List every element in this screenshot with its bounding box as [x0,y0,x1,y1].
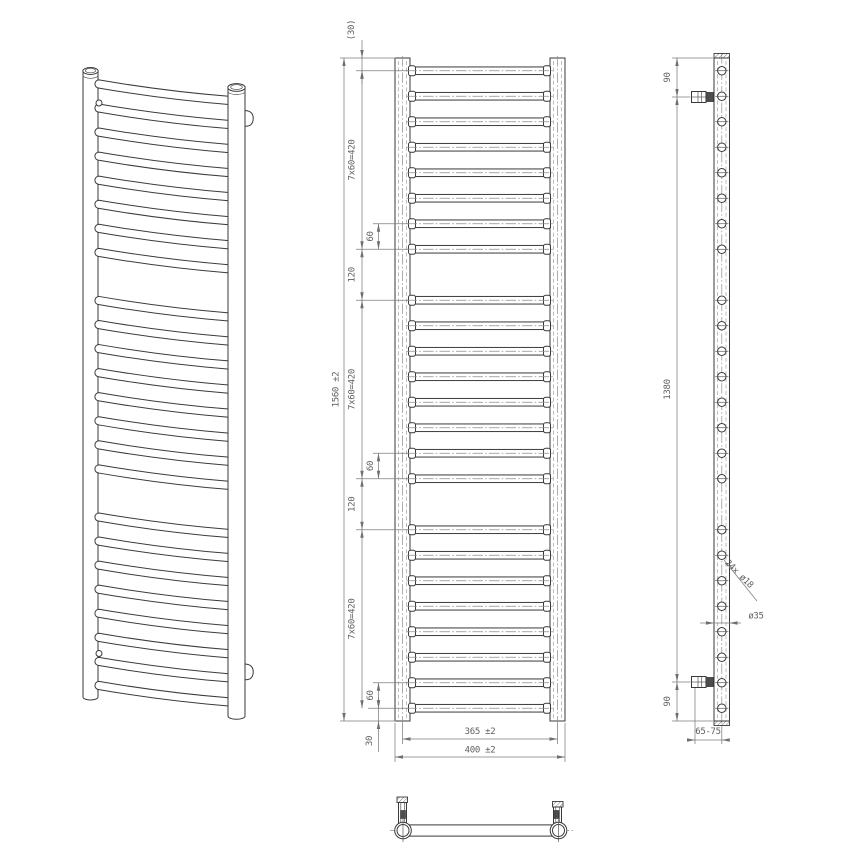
dim-rail-diameter: ø35 [748,612,763,622]
dim-group-gap-1: 120 [348,267,358,282]
dim-group-pitch-2: 7x60=420 [348,369,358,410]
dim-group-pitch-3: 7x60=420 [348,599,358,640]
dim-bracket-bottom-offset: 90 [663,696,673,706]
bottom-view [390,797,573,842]
dim-bracket-span: 1380 [663,379,673,399]
dim-wall-distance: 65-75 [695,727,721,737]
dim-tube-spacing-3: 60 [366,690,376,700]
dim-bottom-offset: 30 [365,736,375,746]
dim-overall-height: 1560 ±2 [332,372,342,408]
drawing-svg: 1560 ±2(30)7x60=4201207x60=4201207x60=42… [0,0,868,868]
dim-bracket-top-offset: 90 [663,72,673,82]
side-view: 9013809024x ø18ø3565-75 [663,53,764,744]
dim-group-gap-2: 120 [348,497,358,512]
perspective-view [83,68,253,720]
dim-rail-center-width: 365 ±2 [465,727,496,737]
dim-overall-width: 400 ±2 [465,746,496,756]
dim-tube-spacing-1: 60 [366,231,376,241]
front-view: 1560 ±2(30)7x60=4201207x60=4201207x60=42… [332,20,566,762]
dim-tube-spacing-2: 60 [366,461,376,471]
dim-group-pitch-1: 7x60=420 [348,140,358,181]
dim-top-offset: (30) [347,20,357,40]
technical-drawing: 1560 ±2(30)7x60=4201207x60=4201207x60=42… [0,0,868,868]
